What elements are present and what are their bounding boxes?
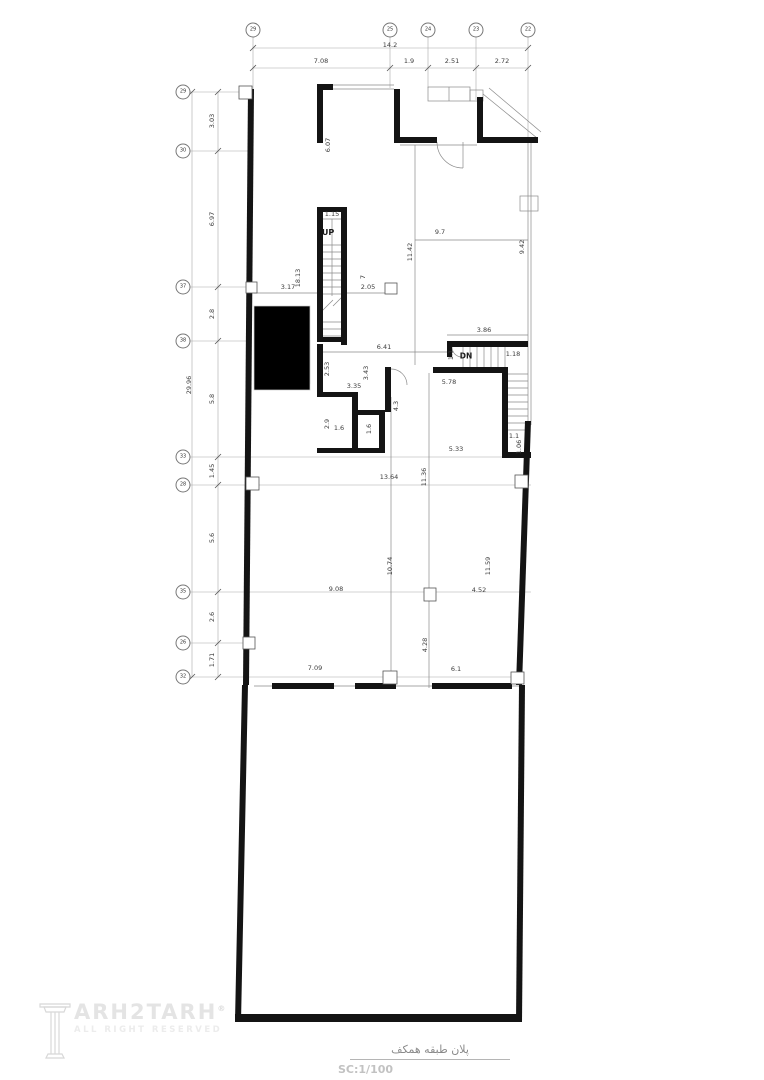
walls xyxy=(235,84,538,1022)
scissor-stair-gray xyxy=(254,306,310,390)
pillar-icon xyxy=(38,1002,72,1060)
brand-name: ARH2TARH® xyxy=(74,1002,227,1023)
sheet-title: پلان طبقه همکف xyxy=(350,1043,510,1060)
title-block: پلان طبقه همکف SC:1/100 xyxy=(330,1038,530,1076)
registered-mark: ® xyxy=(217,1004,227,1013)
logo: ARH2TARH® ALL RIGHT RESERVED xyxy=(38,1002,227,1060)
dn-stair-treads xyxy=(463,347,528,430)
floor-plan-linework xyxy=(0,0,764,1080)
brand-tagline: ALL RIGHT RESERVED xyxy=(74,1025,227,1035)
drawing-sheet: 14.27.081.92.512.7229.963.036.972.85.81.… xyxy=(0,0,764,1080)
scale-label: SC:1/100 xyxy=(330,1063,530,1076)
